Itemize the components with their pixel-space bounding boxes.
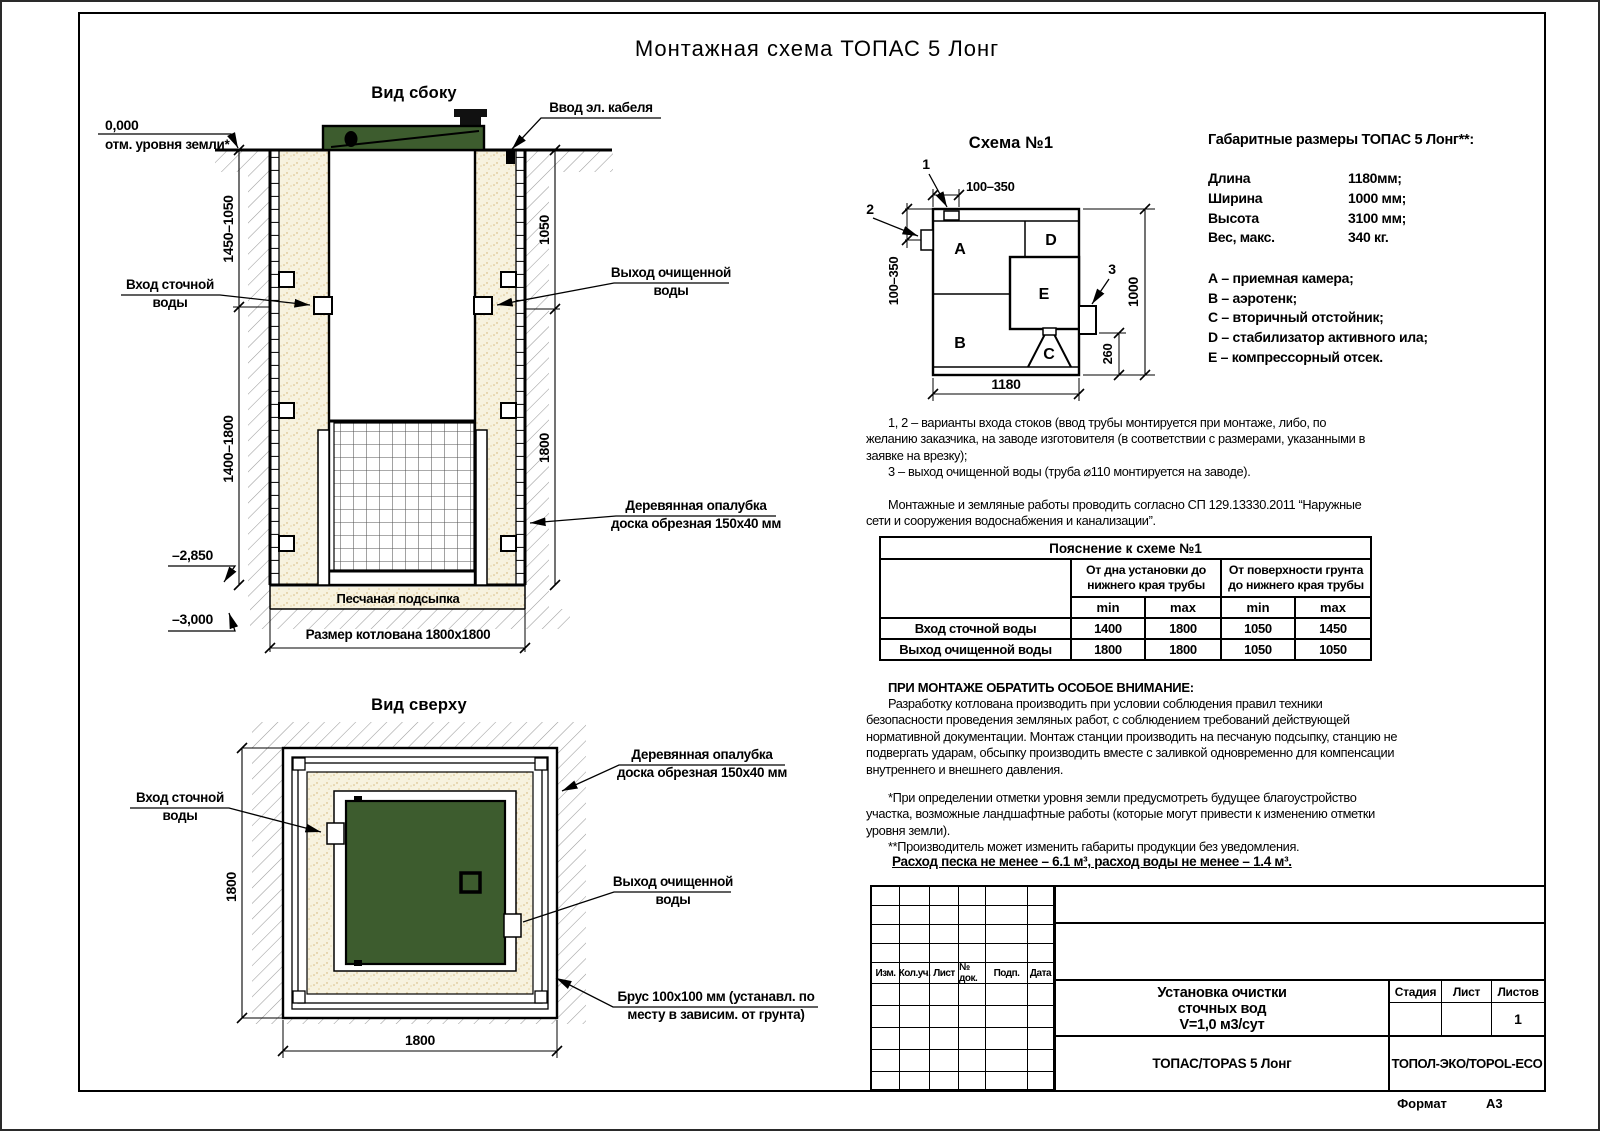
rev-cell	[930, 1028, 959, 1050]
rev-cell	[986, 944, 1028, 963]
compartment-a: A	[954, 241, 966, 258]
revision-grid: Изм.Кол.уч.Лист№ док.Подп.Дата	[872, 887, 1056, 1090]
compartment-legend: А – приемная камера; В – аэротенк; С – в…	[1208, 269, 1538, 367]
cable-label: Ввод эл. кабеля	[549, 100, 653, 115]
rev-cell	[930, 944, 959, 963]
footnotes: *При определении отметки уровня земли пр…	[866, 790, 1394, 856]
rev-cell	[900, 944, 930, 963]
dimensions-spec: Габаритные размеры ТОПАС 5 Лонг**: Длина…	[1208, 132, 1538, 367]
sand-bedding-label: Песчаная подсыпка	[337, 591, 461, 606]
document-title: Установка очистки сточных вод V=1,0 м3/с…	[1056, 981, 1388, 1035]
legend-item: Е – компрессорный отсек.	[1208, 348, 1538, 368]
attention-body: Разработку котлована производить при усл…	[866, 696, 1398, 778]
sheets-value: 1	[1492, 1003, 1544, 1035]
cell: 1050	[1221, 639, 1295, 660]
page-title: Монтажная схема ТОПАС 5 Лонг	[557, 36, 1077, 62]
title-block-empty-row1	[1056, 887, 1544, 924]
table-title: Пояснение к схеме №1	[880, 537, 1371, 559]
ground-level-label: отм. уровня земли*	[105, 137, 231, 152]
lid-latch-top	[354, 796, 362, 802]
dim-offset: 260	[1100, 344, 1115, 365]
inlet-label-line1: Вход сточной	[136, 790, 224, 805]
rev-cell	[930, 887, 959, 906]
rev-cell	[1028, 887, 1054, 906]
rev-cell	[1028, 984, 1054, 1006]
spec-value: 1180мм;	[1348, 169, 1402, 189]
formwork-label-line2: доска обрезная 150х40 мм	[617, 765, 787, 780]
rev-cell	[872, 887, 900, 906]
dim-right-upper: 1050	[536, 215, 552, 245]
dim-top-view-left: 1800	[223, 872, 239, 902]
table-corner-cell	[880, 559, 1071, 618]
rev-cell	[959, 887, 986, 906]
max-header: max	[1145, 597, 1221, 618]
stage-sheet-table: Стадия Лист Листов 1	[1388, 981, 1544, 1035]
lid-latch-bottom	[354, 960, 362, 966]
inlet-pipe-stub-top	[327, 823, 344, 844]
rev-cell	[959, 1050, 986, 1072]
zero-level-mark: 0,000 отм. уровня земли*	[98, 117, 238, 152]
dim-top-view-bottom: 1800	[405, 1032, 435, 1048]
rev-cell	[986, 925, 1028, 944]
cell: 1050	[1295, 639, 1371, 660]
max-header: max	[1295, 597, 1371, 618]
mark-2850: –2,850	[172, 547, 214, 563]
format-label: Формат	[1382, 1096, 1462, 1111]
legend-item: В – аэротенк;	[1208, 289, 1538, 309]
beam-label-line1: Брус 100х100 мм (устанавл. по	[617, 989, 814, 1004]
zero-mark-value: 0,000	[105, 117, 139, 133]
inlet-label-line2: воды	[162, 808, 197, 823]
formwork-label-line1: Деревянная опалубка	[631, 747, 773, 762]
rev-cell	[1028, 925, 1054, 944]
scheme-drawing: A B C D E 1 2 3 100–350 100–350	[845, 129, 1167, 407]
explanation-table: Пояснение к схеме №1 От дна установки до…	[879, 536, 1372, 661]
note-sp-standard: Монтажные и земляные работы проводить со…	[866, 497, 1380, 530]
dim-right-lower: 1800	[536, 433, 552, 463]
scheme-inlet-stub-1	[944, 211, 959, 220]
doc-title-line1: Установка очистки	[1056, 985, 1388, 1001]
rev-header-cell: Кол.уч.	[900, 963, 930, 984]
drawing-sheet: Монтажная схема ТОПАС 5 Лонг	[0, 0, 1600, 1131]
rev-cell	[1028, 1028, 1054, 1050]
scheme-outlet-stub-3	[1079, 306, 1096, 334]
company-name: ТОПОЛ-ЭКО/TOPOL-ECO	[1388, 1037, 1544, 1090]
model-name: ТОПАС/TOPAS 5 Лонг	[1056, 1037, 1388, 1090]
inlet-label-line2: воды	[152, 295, 187, 310]
rev-cell	[986, 1006, 1028, 1028]
rev-cell	[872, 1072, 900, 1090]
callout-2: 2	[866, 201, 874, 217]
cell: 1800	[1071, 639, 1145, 660]
rev-cell	[1028, 906, 1054, 925]
side-view-title: Вид сбоку	[371, 84, 457, 102]
rev-cell	[959, 1028, 986, 1050]
title-block-empty-row2	[1056, 924, 1544, 981]
compartment-e: E	[1039, 286, 1050, 303]
rev-cell	[959, 1072, 986, 1090]
legend-item: D – стабилизатор активного ила;	[1208, 328, 1538, 348]
outlet-label-line2: воды	[653, 283, 688, 298]
rev-cell	[1028, 1006, 1054, 1028]
cell: 1450	[1295, 618, 1371, 639]
format-value: А3	[1486, 1096, 1503, 1111]
rev-cell	[930, 1050, 959, 1072]
rev-cell	[930, 1006, 959, 1028]
rev-cell	[872, 906, 900, 925]
row-label: Вход сточной воды	[880, 618, 1071, 639]
rev-cell	[959, 925, 986, 944]
rev-cell	[959, 906, 986, 925]
dim-depth-upper: 1450–1050	[220, 195, 236, 263]
doc-title-line2: сточных вод	[1056, 1001, 1388, 1017]
scheme-body	[921, 209, 1096, 375]
rev-cell	[900, 1050, 930, 1072]
gravel-grid-zone	[318, 421, 487, 585]
spec-heading: Габаритные размеры ТОПАС 5 Лонг**:	[1208, 132, 1538, 148]
rev-cell	[986, 1072, 1028, 1090]
rev-cell	[872, 1006, 900, 1028]
side-view-drawing: 1450–1050 1400–1800 1050 1800 Размер кот…	[87, 80, 797, 665]
table-group2: От поверхности грунта до нижнего края тр…	[1221, 559, 1371, 597]
cell: 1800	[1145, 618, 1221, 639]
inlet-pipe-stub	[314, 297, 332, 314]
formwork-label-line1: Деревянная опалубка	[625, 498, 767, 513]
consumption-note: Расход песка не менее – 6.1 м³, расход в…	[892, 854, 1292, 869]
footnote-ground-level: *При определении отметки уровня земли пр…	[866, 790, 1394, 839]
scheme-notes: 1, 2 – варианты входа стоков (ввод трубы…	[866, 415, 1380, 529]
min-header: min	[1221, 597, 1295, 618]
rev-header-cell: Лист	[930, 963, 959, 984]
outlet-label-line2: воды	[655, 892, 690, 907]
rev-cell	[959, 984, 986, 1006]
rev-cell	[930, 906, 959, 925]
compartment-c: C	[1043, 346, 1055, 363]
rev-cell	[900, 887, 930, 906]
min-header: min	[1071, 597, 1145, 618]
rev-cell	[900, 984, 930, 1006]
legend-item: С – вторичный отстойник;	[1208, 308, 1538, 328]
cell: 1800	[1145, 639, 1221, 660]
cell: 1050	[1221, 618, 1295, 639]
rev-cell	[986, 1050, 1028, 1072]
spec-rows: Длина1180мм; Ширина1000 мм; Высота3100 м…	[1208, 169, 1538, 248]
rev-cell	[900, 1072, 930, 1090]
cable-entry-point	[506, 151, 515, 164]
level-marks: –2,850 –3,000	[168, 547, 235, 631]
scheme-title: Схема №1	[969, 134, 1054, 152]
pit-size-label: Размер котлована 1800х1800	[306, 627, 491, 642]
title-block: Изм.Кол.уч.Лист№ док.Подп.Дата Установка…	[870, 885, 1546, 1092]
table-group1: От дна установки до нижнего края трубы	[1071, 559, 1221, 597]
rev-header-cell: Дата	[1028, 963, 1054, 984]
sheets-header: Листов	[1492, 981, 1544, 1003]
rev-cell	[900, 925, 930, 944]
rev-cell	[959, 1006, 986, 1028]
note-inlet-variants: 1, 2 – варианты входа стоков (ввод трубы…	[866, 415, 1380, 464]
beam-label-line2: месту в зависим. от грунта)	[627, 1007, 804, 1022]
compartment-d: D	[1045, 232, 1057, 249]
dim-bottom: 1180	[991, 376, 1021, 392]
rev-cell	[930, 984, 959, 1006]
spec-value: 1000 мм;	[1348, 189, 1406, 209]
row-label: Выход очищенной воды	[880, 639, 1071, 660]
rev-cell	[930, 1072, 959, 1090]
note-outlet: 3 – выход очищенной воды (труба ⌀110 мон…	[866, 464, 1380, 480]
legend-item: А – приемная камера;	[1208, 269, 1538, 289]
spec-label: Вес, макс.	[1208, 228, 1348, 248]
rev-cell	[872, 1050, 900, 1072]
rev-header-cell: № док.	[959, 963, 986, 984]
rev-cell	[986, 984, 1028, 1006]
callout-3: 3	[1108, 261, 1116, 277]
title-block-main: Установка очистки сточных вод V=1,0 м3/с…	[1056, 887, 1544, 1090]
outlet-pipe-stub	[474, 297, 492, 314]
dim-left: 100–350	[886, 257, 901, 306]
rev-cell	[872, 984, 900, 1006]
top-view-drawing: 1800 1800 Вход сточной воды Деревянная о…	[87, 680, 827, 1082]
rev-cell	[1028, 1072, 1054, 1090]
rev-cell	[900, 906, 930, 925]
rev-header-cell: Изм.	[872, 963, 900, 984]
outlet-label-line1: Выход очищенной	[613, 874, 733, 889]
spec-value: 340 кг.	[1348, 228, 1388, 248]
spec-label: Длина	[1208, 169, 1348, 189]
compartment-b: B	[954, 335, 966, 352]
stage-value	[1390, 1003, 1442, 1035]
spec-label: Высота	[1208, 209, 1348, 229]
attention-heading: ПРИ МОНТАЖЕ ОБРАТИТЬ ОСОБОЕ ВНИМАНИЕ:	[866, 680, 1398, 695]
top-view-title: Вид сверху	[371, 696, 467, 714]
rev-cell	[872, 944, 900, 963]
rev-cell	[986, 1028, 1028, 1050]
outlet-pipe-stub-top	[504, 914, 521, 937]
formwork-label-line2: доска обрезная 150х40 мм	[611, 516, 781, 531]
stage-header: Стадия	[1390, 981, 1442, 1003]
spec-value: 3100 мм;	[1348, 209, 1406, 229]
sheet-value	[1442, 1003, 1492, 1035]
rev-header-cell: Подп.	[986, 963, 1028, 984]
dim-top: 100–350	[966, 179, 1015, 194]
sheet-header: Лист	[1442, 981, 1492, 1003]
rev-cell	[1028, 1050, 1054, 1072]
dim-depth-lower: 1400–1800	[220, 415, 236, 483]
attention-note: ПРИ МОНТАЖЕ ОБРАТИТЬ ОСОБОЕ ВНИМАНИЕ: Ра…	[866, 680, 1398, 778]
rev-cell	[959, 944, 986, 963]
spec-label: Ширина	[1208, 189, 1348, 209]
callout-1: 1	[922, 156, 930, 172]
rev-cell	[872, 925, 900, 944]
scheme-inlet-stub-2	[921, 230, 933, 250]
inlet-label-line1: Вход сточной	[126, 277, 214, 292]
rev-cell	[986, 887, 1028, 906]
outlet-label-line1: Выход очищенной	[611, 265, 731, 280]
dim-right: 1000	[1125, 277, 1141, 307]
doc-title-line3: V=1,0 м3/сут	[1056, 1017, 1388, 1033]
rev-cell	[900, 1028, 930, 1050]
rev-cell	[986, 906, 1028, 925]
rev-cell	[1028, 944, 1054, 963]
rev-cell	[872, 1028, 900, 1050]
mark-3000: –3,000	[172, 611, 214, 627]
rev-cell	[900, 1006, 930, 1028]
rev-cell	[930, 925, 959, 944]
cell: 1400	[1071, 618, 1145, 639]
